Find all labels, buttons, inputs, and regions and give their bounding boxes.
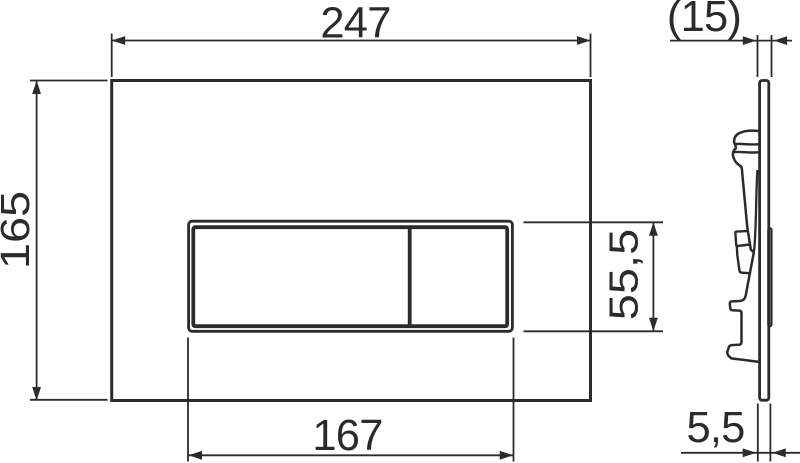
svg-text:165: 165	[0, 191, 38, 269]
svg-text:5,5: 5,5	[686, 404, 744, 452]
svg-text:(15): (15)	[667, 0, 741, 41]
svg-text:55,5: 55,5	[602, 229, 647, 320]
svg-text:247: 247	[320, 0, 390, 48]
svg-text:167: 167	[312, 412, 382, 460]
